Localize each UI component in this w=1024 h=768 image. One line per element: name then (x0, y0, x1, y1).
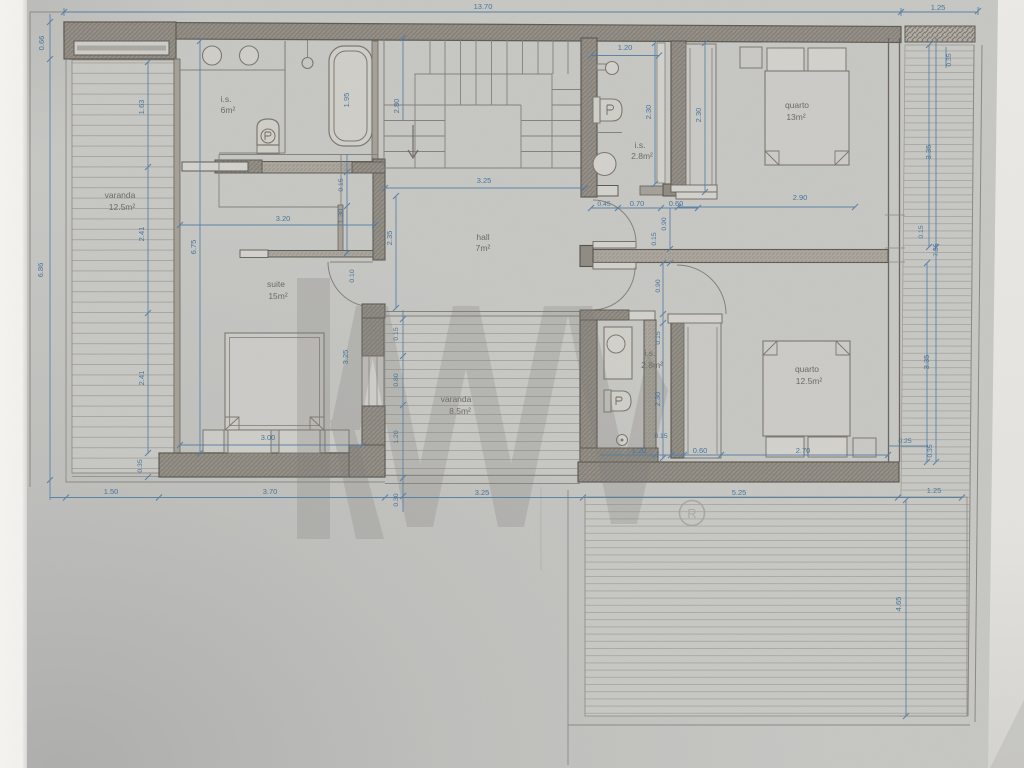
svg-text:2.80: 2.80 (392, 99, 401, 114)
svg-text:0.25: 0.25 (898, 438, 911, 445)
svg-text:2.30: 2.30 (694, 108, 703, 123)
svg-text:2.30: 2.30 (644, 105, 653, 120)
svg-text:6.86: 6.86 (36, 263, 45, 278)
svg-text:2.90: 2.90 (793, 193, 808, 202)
svg-text:2.70: 2.70 (796, 446, 811, 455)
svg-text:0.45: 0.45 (597, 201, 610, 208)
svg-text:0.30: 0.30 (393, 493, 400, 506)
svg-text:1.20: 1.20 (618, 43, 633, 52)
svg-text:0.15: 0.15 (393, 327, 400, 340)
svg-text:3.20: 3.20 (276, 214, 291, 223)
svg-text:3.70: 3.70 (263, 487, 278, 496)
svg-text:0.60: 0.60 (693, 446, 708, 455)
svg-text:3.25: 3.25 (341, 350, 350, 365)
svg-text:2.41: 2.41 (137, 227, 146, 242)
svg-text:3.00: 3.00 (261, 433, 276, 442)
svg-text:0.60: 0.60 (669, 199, 684, 208)
svg-text:0.66: 0.66 (37, 36, 46, 51)
svg-text:2.35: 2.35 (385, 231, 394, 246)
svg-text:2.41: 2.41 (137, 371, 146, 386)
svg-text:0.10: 0.10 (349, 269, 356, 282)
svg-text:2.30: 2.30 (653, 392, 662, 407)
svg-text:4.65: 4.65 (894, 597, 903, 612)
svg-text:0.90: 0.90 (661, 217, 668, 230)
svg-text:1.20: 1.20 (393, 430, 400, 443)
svg-text:0.15: 0.15 (338, 178, 345, 191)
svg-text:3.35: 3.35 (922, 355, 931, 370)
svg-text:7.55: 7.55 (933, 243, 940, 256)
svg-text:0.35: 0.35 (927, 444, 934, 457)
svg-text:1.95: 1.95 (342, 93, 351, 108)
svg-text:6.75: 6.75 (189, 240, 198, 255)
svg-text:0.90: 0.90 (655, 279, 662, 292)
svg-text:1.25: 1.25 (931, 3, 946, 12)
svg-text:0.35: 0.35 (137, 459, 144, 472)
svg-text:1.50: 1.50 (104, 487, 119, 496)
svg-text:13.70: 13.70 (474, 2, 493, 11)
svg-text:1.63: 1.63 (137, 100, 146, 115)
svg-text:3.35: 3.35 (924, 145, 933, 160)
svg-text:0.35: 0.35 (946, 53, 953, 66)
svg-text:3.25: 3.25 (477, 176, 492, 185)
svg-text:0.15: 0.15 (655, 331, 662, 344)
svg-text:5.25: 5.25 (732, 488, 747, 497)
svg-text:3.25: 3.25 (475, 488, 490, 497)
svg-text:1.25: 1.25 (927, 486, 942, 495)
svg-text:0.15: 0.15 (654, 433, 667, 440)
svg-text:R: R (687, 506, 696, 521)
svg-text:1.20: 1.20 (632, 446, 647, 455)
svg-text:1.30: 1.30 (336, 209, 345, 224)
svg-text:0.70: 0.70 (630, 199, 645, 208)
svg-text:0.15: 0.15 (651, 232, 658, 245)
svg-text:0.80: 0.80 (393, 373, 400, 386)
svg-text:0.15: 0.15 (918, 225, 925, 238)
